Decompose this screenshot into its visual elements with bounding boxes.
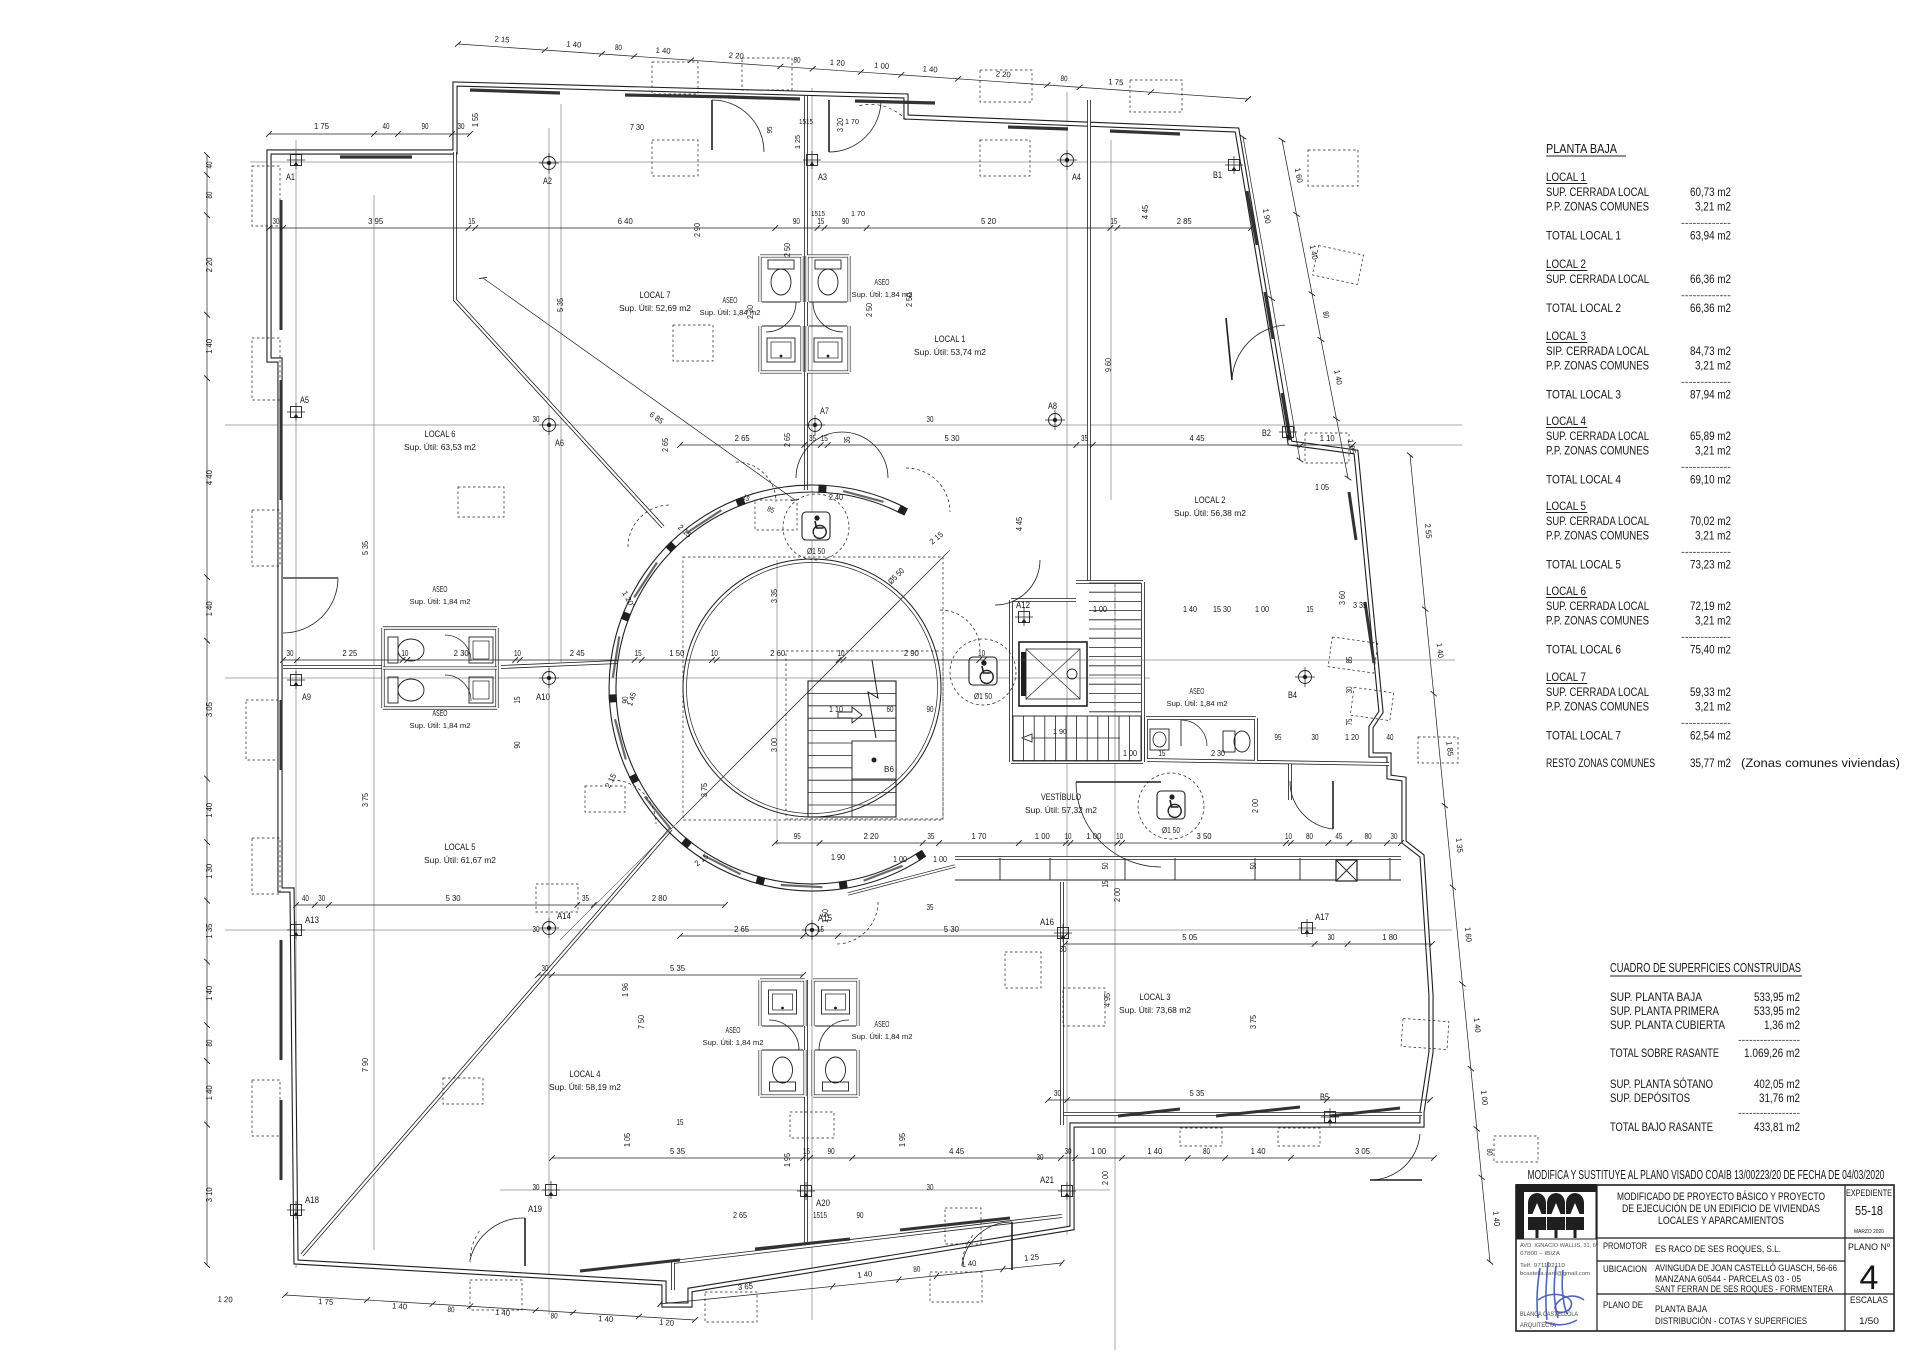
svg-text:30: 30: [927, 415, 935, 424]
svg-text:1 00: 1 00: [1123, 749, 1138, 758]
svg-text:A7: A7: [820, 406, 829, 416]
svg-text:ASEO: ASEO: [1190, 686, 1205, 696]
svg-text:1 40: 1 40: [1491, 1211, 1502, 1227]
svg-text:63,94 m2: 63,94 m2: [1690, 229, 1731, 243]
svg-text:1 75: 1 75: [318, 1297, 334, 1307]
svg-text:(Zonas comunes viviendas): (Zonas comunes viviendas): [1741, 756, 1900, 770]
svg-text:1 40: 1 40: [205, 338, 214, 354]
svg-text:Ø1 50: Ø1 50: [974, 692, 993, 701]
svg-text:1 25: 1 25: [793, 135, 802, 149]
svg-text:10: 10: [1065, 832, 1072, 841]
svg-text:3 75: 3 75: [1249, 1014, 1258, 1029]
svg-text:ARQUITECTA: ARQUITECTA: [1520, 1322, 1557, 1329]
svg-text:Sup. Útil: 57,32 m2: Sup. Útil: 57,32 m2: [1025, 805, 1097, 815]
svg-text:TOTAL LOCAL 6: TOTAL LOCAL 6: [1546, 643, 1621, 657]
svg-text:69,10 m2: 69,10 m2: [1690, 473, 1731, 487]
svg-text:1 50: 1 50: [669, 649, 685, 658]
svg-text:1 10: 1 10: [1320, 434, 1336, 443]
svg-text:90: 90: [422, 122, 429, 131]
svg-text:5 35: 5 35: [556, 297, 565, 312]
svg-text:1 00: 1 00: [1086, 832, 1102, 841]
svg-text:2 65: 2 65: [661, 437, 670, 452]
svg-text:5 35: 5 35: [670, 964, 686, 973]
svg-text:2 55: 2 55: [1423, 523, 1434, 539]
svg-text:07800 – IBIZA: 07800 – IBIZA: [1520, 1251, 1560, 1257]
svg-text:SUP. PLANTA PRIMERA: SUP. PLANTA PRIMERA: [1610, 1004, 1720, 1018]
svg-text:SIP. CERRADA LOCAL: SIP. CERRADA LOCAL: [1546, 344, 1649, 358]
svg-text:Ø1 50: Ø1 50: [807, 547, 826, 556]
svg-text:10: 10: [1285, 832, 1292, 841]
svg-text:15: 15: [1101, 880, 1110, 888]
svg-text:15: 15: [1307, 605, 1315, 614]
svg-text:5 35: 5 35: [1189, 1089, 1205, 1098]
svg-text:1515: 1515: [811, 209, 825, 218]
svg-text:UBICACION: UBICACION: [1603, 1264, 1647, 1275]
svg-text:35: 35: [1081, 434, 1088, 443]
svg-text:1 05: 1 05: [1315, 483, 1330, 492]
svg-text:5 30: 5 30: [944, 925, 960, 934]
svg-text:1515: 1515: [813, 1211, 828, 1220]
svg-text:A14: A14: [557, 911, 571, 921]
svg-text:55-18: 55-18: [1855, 1204, 1883, 1218]
svg-text:80: 80: [1060, 74, 1068, 83]
svg-text:A8: A8: [1048, 401, 1057, 411]
svg-text:30: 30: [287, 649, 294, 658]
svg-text:2 20: 2 20: [864, 832, 880, 841]
svg-text:2 65: 2 65: [735, 434, 751, 443]
svg-text:A16: A16: [1040, 917, 1054, 927]
svg-text:1 40: 1 40: [205, 985, 214, 1001]
svg-text:B1: B1: [1213, 170, 1222, 180]
svg-text:A5: A5: [300, 395, 309, 405]
svg-text:2 15: 2 15: [494, 35, 510, 45]
svg-text:1 40: 1 40: [205, 1085, 214, 1101]
svg-text:ASEO: ASEO: [875, 1019, 890, 1029]
svg-text:35: 35: [582, 894, 589, 903]
svg-text:2 25: 2 25: [342, 649, 358, 658]
svg-text:SUP. CERRADA LOCAL: SUP. CERRADA LOCAL: [1546, 272, 1649, 286]
svg-text:2 00: 2 00: [1101, 1170, 1110, 1185]
svg-text:TOTAL LOCAL 4: TOTAL LOCAL 4: [1546, 473, 1621, 487]
svg-text:59,33 m2: 59,33 m2: [1690, 685, 1731, 699]
svg-text:15: 15: [821, 434, 828, 443]
svg-text:30: 30: [1060, 945, 1068, 954]
svg-text:LOCAL 3: LOCAL 3: [1546, 329, 1586, 343]
svg-text:84,73 m2: 84,73 m2: [1690, 344, 1731, 358]
svg-text:40: 40: [1387, 733, 1395, 742]
svg-text:2 40: 2 40: [829, 493, 844, 502]
svg-text:Sup. Útil: 1,84 m2: Sup. Útil: 1,84 m2: [852, 290, 913, 299]
svg-text:Sup. Útil: 58,19 m2: Sup. Útil: 58,19 m2: [549, 1082, 621, 1092]
svg-text:DISTRIBUCIÓN - COTAS Y SUPERFI: DISTRIBUCIÓN - COTAS Y SUPERFICIES: [1655, 1315, 1807, 1326]
svg-text:SUP. PLANTA CUBIERTA: SUP. PLANTA CUBIERTA: [1610, 1018, 1726, 1032]
svg-text:-------------: -------------: [1681, 291, 1731, 302]
svg-text:1 50: 1 50: [821, 908, 830, 923]
svg-text:1 40: 1 40: [922, 64, 938, 74]
svg-text:1 05: 1 05: [623, 1132, 632, 1147]
svg-text:1 40: 1 40: [961, 1259, 977, 1270]
svg-text:VESTÍBULO: VESTÍBULO: [1041, 792, 1081, 803]
svg-text:533,95 m2: 533,95 m2: [1754, 990, 1800, 1004]
svg-text:A17: A17: [1315, 912, 1329, 922]
svg-text:10: 10: [978, 649, 985, 658]
svg-text:A13: A13: [305, 915, 319, 925]
svg-text:90: 90: [828, 1147, 835, 1156]
svg-text:LOCAL 5: LOCAL 5: [1546, 499, 1586, 513]
svg-text:2 50: 2 50: [905, 292, 914, 307]
svg-text:1 20: 1 20: [830, 58, 846, 68]
svg-text:A2: A2: [543, 176, 552, 186]
svg-text:SUP. PLANTA BAJA: SUP. PLANTA BAJA: [1610, 990, 1703, 1004]
svg-text:1 40: 1 40: [1183, 605, 1198, 614]
svg-text:ES RACO DE SES ROQUES, S.L.: ES RACO DE SES ROQUES, S.L.: [1655, 1244, 1781, 1255]
svg-text:A1: A1: [286, 172, 295, 182]
svg-text:15: 15: [677, 1118, 685, 1127]
svg-text:15: 15: [468, 217, 475, 226]
svg-text:1 40: 1 40: [655, 46, 671, 56]
svg-text:3,21 m2: 3,21 m2: [1695, 700, 1731, 714]
svg-text:3 35: 3 35: [770, 588, 779, 603]
svg-text:ASEO: ASEO: [433, 708, 448, 718]
svg-text:2 90: 2 90: [904, 649, 920, 658]
svg-text:80: 80: [615, 43, 623, 52]
svg-text:AVINGUDA DE JOAN CASTELLÓ GUAS: AVINGUDA DE JOAN CASTELLÓ GUASCH, 56-66: [1655, 1262, 1837, 1273]
svg-text:45: 45: [1335, 832, 1342, 841]
svg-text:80: 80: [1203, 1147, 1210, 1156]
svg-text:4 40: 4 40: [205, 470, 214, 486]
svg-text:-------------: -------------: [1681, 632, 1731, 643]
svg-text:10: 10: [837, 649, 844, 658]
svg-text:P.P. ZONAS COMUNES: P.P. ZONAS COMUNES: [1546, 529, 1649, 543]
svg-text:3 65: 3 65: [738, 1281, 754, 1292]
svg-text:1 90: 1 90: [1053, 727, 1067, 736]
svg-text:-------------: -------------: [1681, 462, 1731, 473]
svg-text:1515: 1515: [799, 117, 813, 126]
svg-text:2 30: 2 30: [746, 304, 755, 319]
svg-text:1 30: 1 30: [205, 863, 214, 879]
svg-text:2 65: 2 65: [734, 925, 750, 934]
svg-text:3 35: 3 35: [1353, 601, 1368, 610]
svg-text:1 25: 1 25: [1024, 1252, 1040, 1263]
svg-text:LOCAL 7: LOCAL 7: [640, 290, 671, 301]
svg-text:3 95: 3 95: [368, 217, 384, 226]
svg-text:90: 90: [513, 741, 522, 749]
svg-text:3 05: 3 05: [205, 702, 214, 718]
svg-text:1 85: 1 85: [1444, 741, 1455, 757]
svg-text:433,81 m2: 433,81 m2: [1754, 1120, 1800, 1134]
svg-text:LOCAL 3: LOCAL 3: [1140, 992, 1171, 1003]
svg-text:35,77 m2: 35,77 m2: [1690, 756, 1731, 770]
svg-text:SUP. CERRADA LOCAL: SUP. CERRADA LOCAL: [1546, 429, 1649, 443]
svg-text:35: 35: [927, 903, 935, 912]
svg-text:B4: B4: [1288, 690, 1297, 700]
svg-text:1 40: 1 40: [495, 1308, 511, 1318]
svg-text:P.P. ZONAS COMUNES: P.P. ZONAS COMUNES: [1546, 700, 1649, 714]
svg-text:A18: A18: [305, 1195, 319, 1205]
svg-text:30: 30: [1065, 1147, 1072, 1156]
svg-text:-----------------: -----------------: [1738, 1035, 1800, 1046]
svg-text:A3: A3: [818, 172, 827, 182]
svg-text:1 95: 1 95: [783, 1152, 792, 1167]
svg-text:1,36 m2: 1,36 m2: [1764, 1018, 1800, 1032]
svg-text:Sup. Útil: 1,84 m2: Sup. Útil: 1,84 m2: [852, 1032, 913, 1041]
svg-text:95: 95: [765, 127, 774, 134]
svg-text:1 55: 1 55: [471, 112, 480, 127]
svg-text:1 20: 1 20: [1345, 733, 1360, 742]
svg-text:3 50: 3 50: [1197, 832, 1213, 841]
svg-text:1 40: 1 40: [205, 601, 214, 617]
svg-text:B6: B6: [884, 765, 894, 774]
svg-text:Sup. Útil: 53,74 m2: Sup. Útil: 53,74 m2: [914, 347, 986, 357]
svg-text:30: 30: [458, 122, 465, 131]
svg-text:3,21 m2: 3,21 m2: [1695, 614, 1731, 628]
svg-text:5 20: 5 20: [981, 217, 997, 226]
svg-text:90: 90: [793, 217, 800, 226]
svg-text:ASEO: ASEO: [433, 584, 448, 594]
svg-text:1 40: 1 40: [598, 1314, 614, 1324]
svg-text:3 60: 3 60: [1338, 590, 1347, 605]
svg-text:80: 80: [913, 1264, 921, 1274]
svg-text:1 35: 1 35: [1454, 837, 1465, 853]
svg-text:SUP. CERRADA LOCAL: SUP. CERRADA LOCAL: [1546, 685, 1649, 699]
svg-text:A20: A20: [816, 1198, 830, 1208]
svg-text:10: 10: [401, 649, 408, 658]
svg-text:30: 30: [1390, 832, 1397, 841]
svg-text:2 85: 2 85: [1177, 217, 1193, 226]
svg-text:1 20: 1 20: [659, 1318, 675, 1328]
svg-text:1 40: 1 40: [857, 1269, 873, 1280]
svg-text:1 10: 1 10: [829, 705, 844, 714]
svg-text:LOCAL 4: LOCAL 4: [1546, 414, 1586, 428]
svg-text:TOTAL LOCAL 1: TOTAL LOCAL 1: [1546, 229, 1621, 243]
svg-text:1 96: 1 96: [621, 983, 630, 997]
svg-text:1 00: 1 00: [893, 855, 908, 864]
svg-text:Sup. Útil: 1,84 m2: Sup. Útil: 1,84 m2: [1167, 699, 1228, 708]
svg-text:402,05 m2: 402,05 m2: [1754, 1077, 1800, 1091]
svg-text:87,94 m2: 87,94 m2: [1690, 388, 1731, 402]
svg-text:3,21 m2: 3,21 m2: [1695, 444, 1731, 458]
svg-text:PLANTA BAJA: PLANTA BAJA: [1546, 142, 1618, 156]
svg-text:2 30: 2 30: [1211, 749, 1226, 758]
svg-text:90: 90: [927, 705, 935, 714]
svg-text:Sup. Útil: 61,67 m2: Sup. Útil: 61,67 m2: [424, 855, 496, 865]
svg-text:1 00: 1 00: [1035, 832, 1051, 841]
svg-text:1 70: 1 70: [851, 209, 865, 218]
svg-text:35: 35: [843, 436, 852, 444]
svg-text:PLANO DE: PLANO DE: [1603, 1300, 1643, 1311]
svg-text:60,73 m2: 60,73 m2: [1690, 185, 1731, 199]
svg-text:2 50: 2 50: [783, 242, 792, 257]
svg-text:30: 30: [1345, 686, 1354, 694]
svg-text:1 70: 1 70: [845, 117, 859, 126]
svg-text:PLANTA BAJA: PLANTA BAJA: [1655, 1303, 1708, 1314]
svg-text:30: 30: [533, 925, 541, 934]
svg-text:66,36 m2: 66,36 m2: [1690, 301, 1731, 315]
svg-text:LOCAL 2: LOCAL 2: [1546, 257, 1586, 271]
svg-text:80: 80: [1485, 1148, 1495, 1156]
svg-text:2 65: 2 65: [733, 1211, 748, 1220]
svg-text:Sup. Útil: 1,84 m2: Sup. Útil: 1,84 m2: [703, 1038, 764, 1047]
svg-text:SANT FERRAN DE SES ROQUES - FO: SANT FERRAN DE SES ROQUES - FORMENTERA: [1655, 1283, 1834, 1294]
svg-text:30: 30: [1037, 1153, 1045, 1162]
svg-text:15: 15: [635, 649, 642, 658]
svg-text:70,02 m2: 70,02 m2: [1690, 514, 1731, 528]
svg-text:Telf. 971192110: Telf. 971192110: [1520, 1263, 1565, 1269]
svg-text:31,76 m2: 31,76 m2: [1759, 1091, 1800, 1105]
svg-text:35: 35: [927, 832, 934, 841]
svg-text:2 50: 2 50: [865, 302, 874, 317]
svg-text:LOCAL 6: LOCAL 6: [1546, 584, 1586, 598]
svg-text:Sup. Útil: 63,53 m2: Sup. Útil: 63,53 m2: [404, 442, 476, 452]
svg-text:ASEO: ASEO: [723, 295, 738, 305]
svg-text:A9: A9: [302, 692, 311, 702]
svg-text:LOCAL 2: LOCAL 2: [1195, 495, 1226, 506]
svg-text:TOTAL LOCAL 3: TOTAL LOCAL 3: [1546, 388, 1621, 402]
svg-text:80: 80: [1365, 832, 1372, 841]
svg-text:66,36 m2: 66,36 m2: [1690, 272, 1731, 286]
svg-text:30: 30: [1328, 933, 1335, 942]
svg-text:LOCAL 6: LOCAL 6: [425, 429, 456, 440]
svg-text:CUADRO DE SUPERFICIES CONSTRUI: CUADRO DE SUPERFICIES CONSTRUIDAS: [1610, 961, 1801, 975]
svg-text:1 20: 1 20: [217, 1295, 233, 1305]
svg-text:15: 15: [1159, 749, 1167, 758]
svg-text:3 75: 3 75: [361, 792, 370, 807]
svg-text:2 00: 2 00: [1113, 887, 1122, 902]
svg-text:4 45: 4 45: [1015, 516, 1024, 531]
svg-text:Ø1 50: Ø1 50: [1162, 826, 1181, 835]
svg-text:1 00: 1 00: [1091, 1147, 1107, 1156]
svg-text:1 75: 1 75: [314, 122, 330, 131]
svg-text:1 40: 1 40: [392, 1302, 408, 1312]
svg-text:4 95: 4 95: [1103, 992, 1112, 1007]
svg-text:Sup. Útil: 56,38 m2: Sup. Útil: 56,38 m2: [1174, 508, 1246, 518]
svg-text:4 45: 4 45: [949, 1147, 965, 1156]
svg-text:1 40: 1 40: [566, 40, 582, 50]
svg-text:60: 60: [887, 705, 895, 714]
svg-text:3,21 m2: 3,21 m2: [1695, 359, 1731, 373]
svg-text:ESCALAS: ESCALAS: [1850, 1295, 1888, 1306]
svg-text:30: 30: [1312, 733, 1320, 742]
svg-text:1 00: 1 00: [874, 61, 890, 71]
svg-text:1 00: 1 00: [1479, 1090, 1490, 1106]
svg-text:P.P. ZONAS COMUNES: P.P. ZONAS COMUNES: [1546, 200, 1649, 214]
svg-text:1 00: 1 00: [933, 855, 948, 864]
svg-text:2 60: 2 60: [770, 649, 786, 658]
svg-text:2 90: 2 90: [693, 222, 702, 237]
svg-text:2 65: 2 65: [783, 432, 792, 447]
svg-text:SUP. CERRADA LOCAL: SUP. CERRADA LOCAL: [1546, 599, 1649, 613]
svg-text:9 60: 9 60: [1104, 357, 1113, 372]
svg-text:73,23 m2: 73,23 m2: [1690, 558, 1731, 572]
svg-text:4: 4: [1860, 1259, 1879, 1297]
svg-text:1 40: 1 40: [205, 802, 214, 818]
svg-text:80: 80: [550, 1311, 558, 1320]
svg-text:72,19 m2: 72,19 m2: [1690, 599, 1731, 613]
svg-text:LOCAL 4: LOCAL 4: [570, 1069, 602, 1080]
svg-text:30: 30: [533, 415, 541, 424]
svg-text:1 90: 1 90: [831, 853, 846, 862]
svg-text:A4: A4: [1072, 172, 1081, 182]
svg-text:Sup. Útil: 73,68 m2: Sup. Útil: 73,68 m2: [1119, 1005, 1191, 1015]
svg-text:2 20: 2 20: [728, 51, 744, 61]
svg-text:1 70: 1 70: [971, 832, 987, 841]
svg-text:15: 15: [817, 217, 824, 226]
svg-text:P.P. ZONAS COMUNES: P.P. ZONAS COMUNES: [1546, 614, 1649, 628]
svg-text:1 40: 1 40: [1251, 1147, 1267, 1156]
svg-text:1 35: 1 35: [205, 923, 214, 939]
svg-text:1 75: 1 75: [1108, 77, 1124, 87]
svg-text:10: 10: [1116, 832, 1123, 841]
svg-text:40: 40: [302, 894, 309, 903]
svg-text:TOTAL SOBRE RASANTE: TOTAL SOBRE RASANTE: [1610, 1046, 1719, 1060]
svg-text:MODIFICADO DE PROYECTO BÁSICO: MODIFICADO DE PROYECTO BÁSICO Y PROYECTO: [1617, 1190, 1825, 1203]
svg-text:ASEO: ASEO: [726, 1025, 741, 1035]
svg-text:A19: A19: [528, 1204, 542, 1214]
svg-text:95: 95: [794, 832, 801, 841]
svg-text:LOCAL 7: LOCAL 7: [1546, 670, 1586, 684]
svg-text:2 00: 2 00: [1251, 798, 1260, 813]
svg-text:SUP. CERRADA LOCAL: SUP. CERRADA LOCAL: [1546, 185, 1649, 199]
svg-text:50: 50: [1249, 862, 1258, 870]
svg-text:6 40: 6 40: [618, 217, 634, 226]
svg-text:SUP. CERRADA LOCAL: SUP. CERRADA LOCAL: [1546, 514, 1649, 528]
svg-text:-------------: -------------: [1681, 718, 1731, 729]
svg-text:10: 10: [711, 649, 718, 658]
svg-text:40: 40: [383, 122, 390, 131]
svg-text:1.069,26 m2: 1.069,26 m2: [1744, 1046, 1800, 1060]
svg-text:2 45: 2 45: [570, 649, 586, 658]
svg-text:AVD. IGNACIO WALLIS, 31, 6º: AVD. IGNACIO WALLIS, 31, 6º: [1520, 1242, 1599, 1249]
svg-text:MARZO 2020: MARZO 2020: [1854, 1229, 1884, 1235]
svg-text:30: 30: [542, 964, 549, 973]
svg-text:15: 15: [1110, 217, 1117, 226]
svg-text:7 30: 7 30: [630, 123, 645, 132]
svg-text:Sup. Útil: 52,69 m2: Sup. Útil: 52,69 m2: [619, 303, 691, 313]
svg-text:95: 95: [1275, 733, 1283, 742]
svg-text:1 60: 1 60: [1463, 927, 1474, 943]
svg-text:533,95 m2: 533,95 m2: [1754, 1004, 1800, 1018]
svg-text:1 00: 1 00: [1255, 605, 1270, 614]
svg-text:1 40: 1 40: [1147, 1147, 1163, 1156]
svg-text:3,21 m2: 3,21 m2: [1695, 529, 1731, 543]
svg-text:5 30: 5 30: [446, 894, 462, 903]
svg-text:-------------: -------------: [1681, 377, 1731, 388]
svg-text:15: 15: [513, 696, 522, 704]
svg-text:P.P. ZONAS COMUNES: P.P. ZONAS COMUNES: [1546, 444, 1649, 458]
svg-text:BLANCA CASTELLOLA: BLANCA CASTELLOLA: [1520, 1311, 1579, 1318]
svg-text:Sup. Útil: 1,84 m2: Sup. Útil: 1,84 m2: [410, 597, 471, 606]
svg-text:2 30: 2 30: [454, 649, 470, 658]
svg-text:2 80: 2 80: [652, 894, 668, 903]
svg-text:3 75: 3 75: [700, 782, 709, 797]
svg-text:TOTAL LOCAL 5: TOTAL LOCAL 5: [1546, 558, 1621, 572]
svg-text:85: 85: [1345, 656, 1354, 664]
svg-text:4 45: 4 45: [1190, 434, 1206, 443]
svg-text:LOCAL 1: LOCAL 1: [935, 334, 966, 345]
svg-text:15: 15: [817, 925, 824, 934]
svg-text:5 30: 5 30: [945, 434, 961, 443]
svg-text:30: 30: [533, 1183, 541, 1192]
svg-text:B2: B2: [1262, 428, 1271, 438]
svg-text:A6: A6: [555, 438, 564, 448]
svg-text:80: 80: [793, 55, 801, 64]
svg-text:80: 80: [205, 1039, 214, 1046]
svg-text:-----------------: -----------------: [1738, 1108, 1800, 1119]
svg-text:3 05: 3 05: [1355, 1147, 1371, 1156]
svg-text:3 00: 3 00: [770, 737, 779, 752]
svg-text:15: 15: [803, 1147, 810, 1156]
svg-text:B5: B5: [1320, 1092, 1329, 1102]
